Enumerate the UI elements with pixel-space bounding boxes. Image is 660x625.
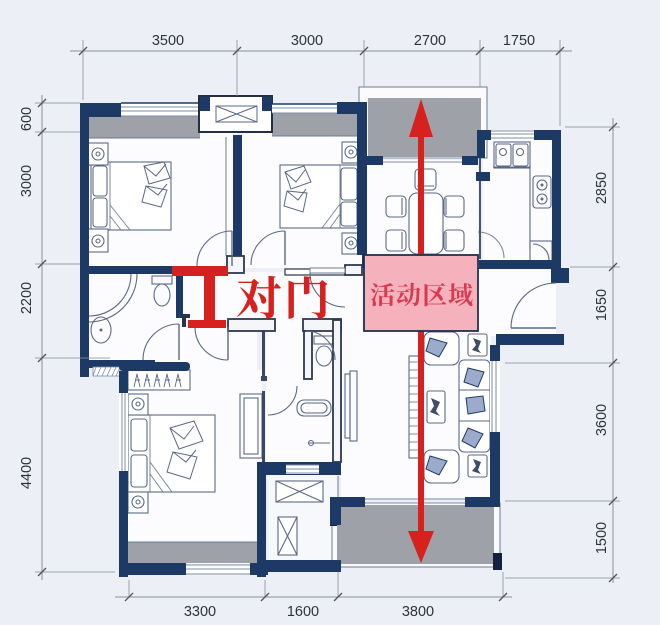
svg-text:3300: 3300: [184, 604, 216, 620]
svg-text:1600: 1600: [287, 604, 319, 620]
svg-text:1650: 1650: [594, 289, 610, 321]
svg-text:3000: 3000: [291, 33, 323, 49]
svg-text:4400: 4400: [19, 457, 35, 489]
svg-text:3600: 3600: [594, 404, 610, 436]
svg-text:600: 600: [19, 107, 35, 131]
svg-text:3800: 3800: [402, 604, 434, 620]
svg-text:2200: 2200: [19, 282, 35, 314]
svg-text:3500: 3500: [152, 33, 184, 49]
svg-text:2850: 2850: [594, 172, 610, 204]
svg-text:3000: 3000: [19, 165, 35, 197]
svg-text:1750: 1750: [503, 33, 535, 49]
svg-text:1500: 1500: [594, 522, 610, 554]
svg-text:2700: 2700: [414, 33, 446, 49]
